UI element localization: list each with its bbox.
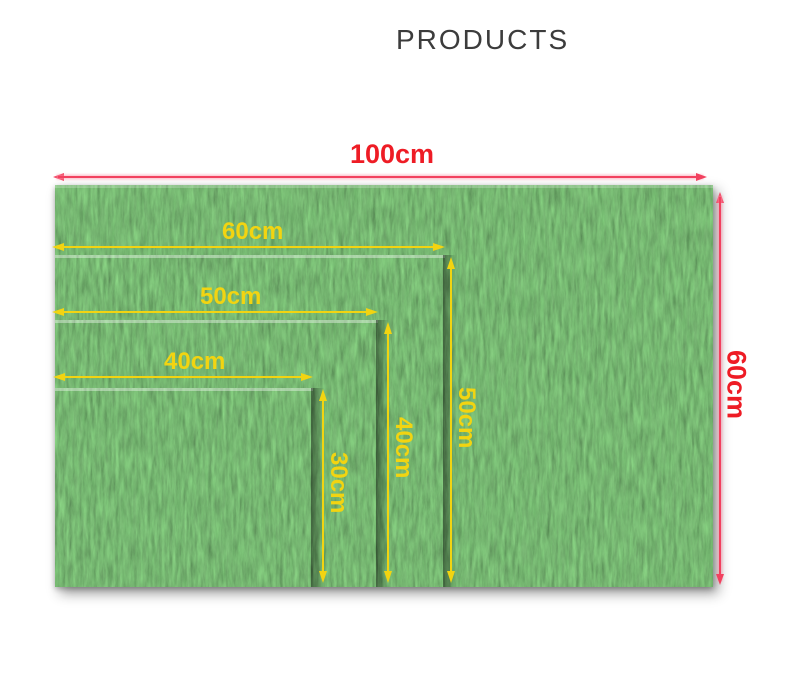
page-background: PRODUCTS bbox=[0, 0, 790, 679]
inner-width-label-60cm: 60cm bbox=[222, 219, 283, 244]
page-title: PRODUCTS bbox=[396, 24, 569, 56]
mat-top-highlight bbox=[55, 185, 713, 188]
mat-edge-highlight bbox=[55, 255, 445, 258]
mat-edge-highlight bbox=[55, 388, 313, 391]
arrow-down-icon bbox=[716, 574, 724, 585]
dimension-line bbox=[387, 327, 389, 578]
dimension-line bbox=[57, 311, 373, 313]
arrow-right-icon bbox=[366, 308, 378, 316]
dimension-line bbox=[450, 262, 452, 578]
inner-width-dimension-line-60cm bbox=[52, 246, 445, 248]
inner-height-dimension-line-50cm bbox=[450, 257, 452, 583]
arrow-right-icon bbox=[301, 373, 313, 381]
mat-edge-highlight bbox=[55, 320, 378, 323]
arrow-right-icon bbox=[433, 243, 445, 251]
outer-width-label: 100cm bbox=[327, 140, 457, 168]
dimension-line bbox=[58, 176, 702, 178]
arrow-down-icon bbox=[384, 571, 392, 583]
dimension-line bbox=[58, 376, 308, 378]
inner-height-label-30cm: 30cm bbox=[326, 452, 351, 513]
inner-width-label-50cm: 50cm bbox=[200, 284, 261, 309]
dimension-line bbox=[322, 394, 324, 578]
arrow-down-icon bbox=[447, 571, 455, 583]
inner-height-label-50cm: 50cm bbox=[454, 387, 479, 448]
inner-width-dimension-line-40cm bbox=[53, 376, 313, 378]
outer-height-label: 60cm bbox=[722, 350, 750, 419]
inner-height-dimension-line-30cm bbox=[322, 389, 324, 583]
arrow-down-icon bbox=[319, 571, 327, 583]
outer-width-dimension-line bbox=[53, 176, 707, 178]
inner-width-dimension-line-50cm bbox=[52, 311, 378, 313]
inner-height-label-40cm: 40cm bbox=[391, 417, 416, 478]
inner-width-label-40cm: 40cm bbox=[164, 349, 225, 374]
dimension-line bbox=[57, 246, 440, 248]
inner-height-dimension-line-40cm bbox=[387, 322, 389, 583]
arrow-right-icon bbox=[696, 173, 707, 181]
inner-mat-40x30 bbox=[55, 388, 324, 587]
